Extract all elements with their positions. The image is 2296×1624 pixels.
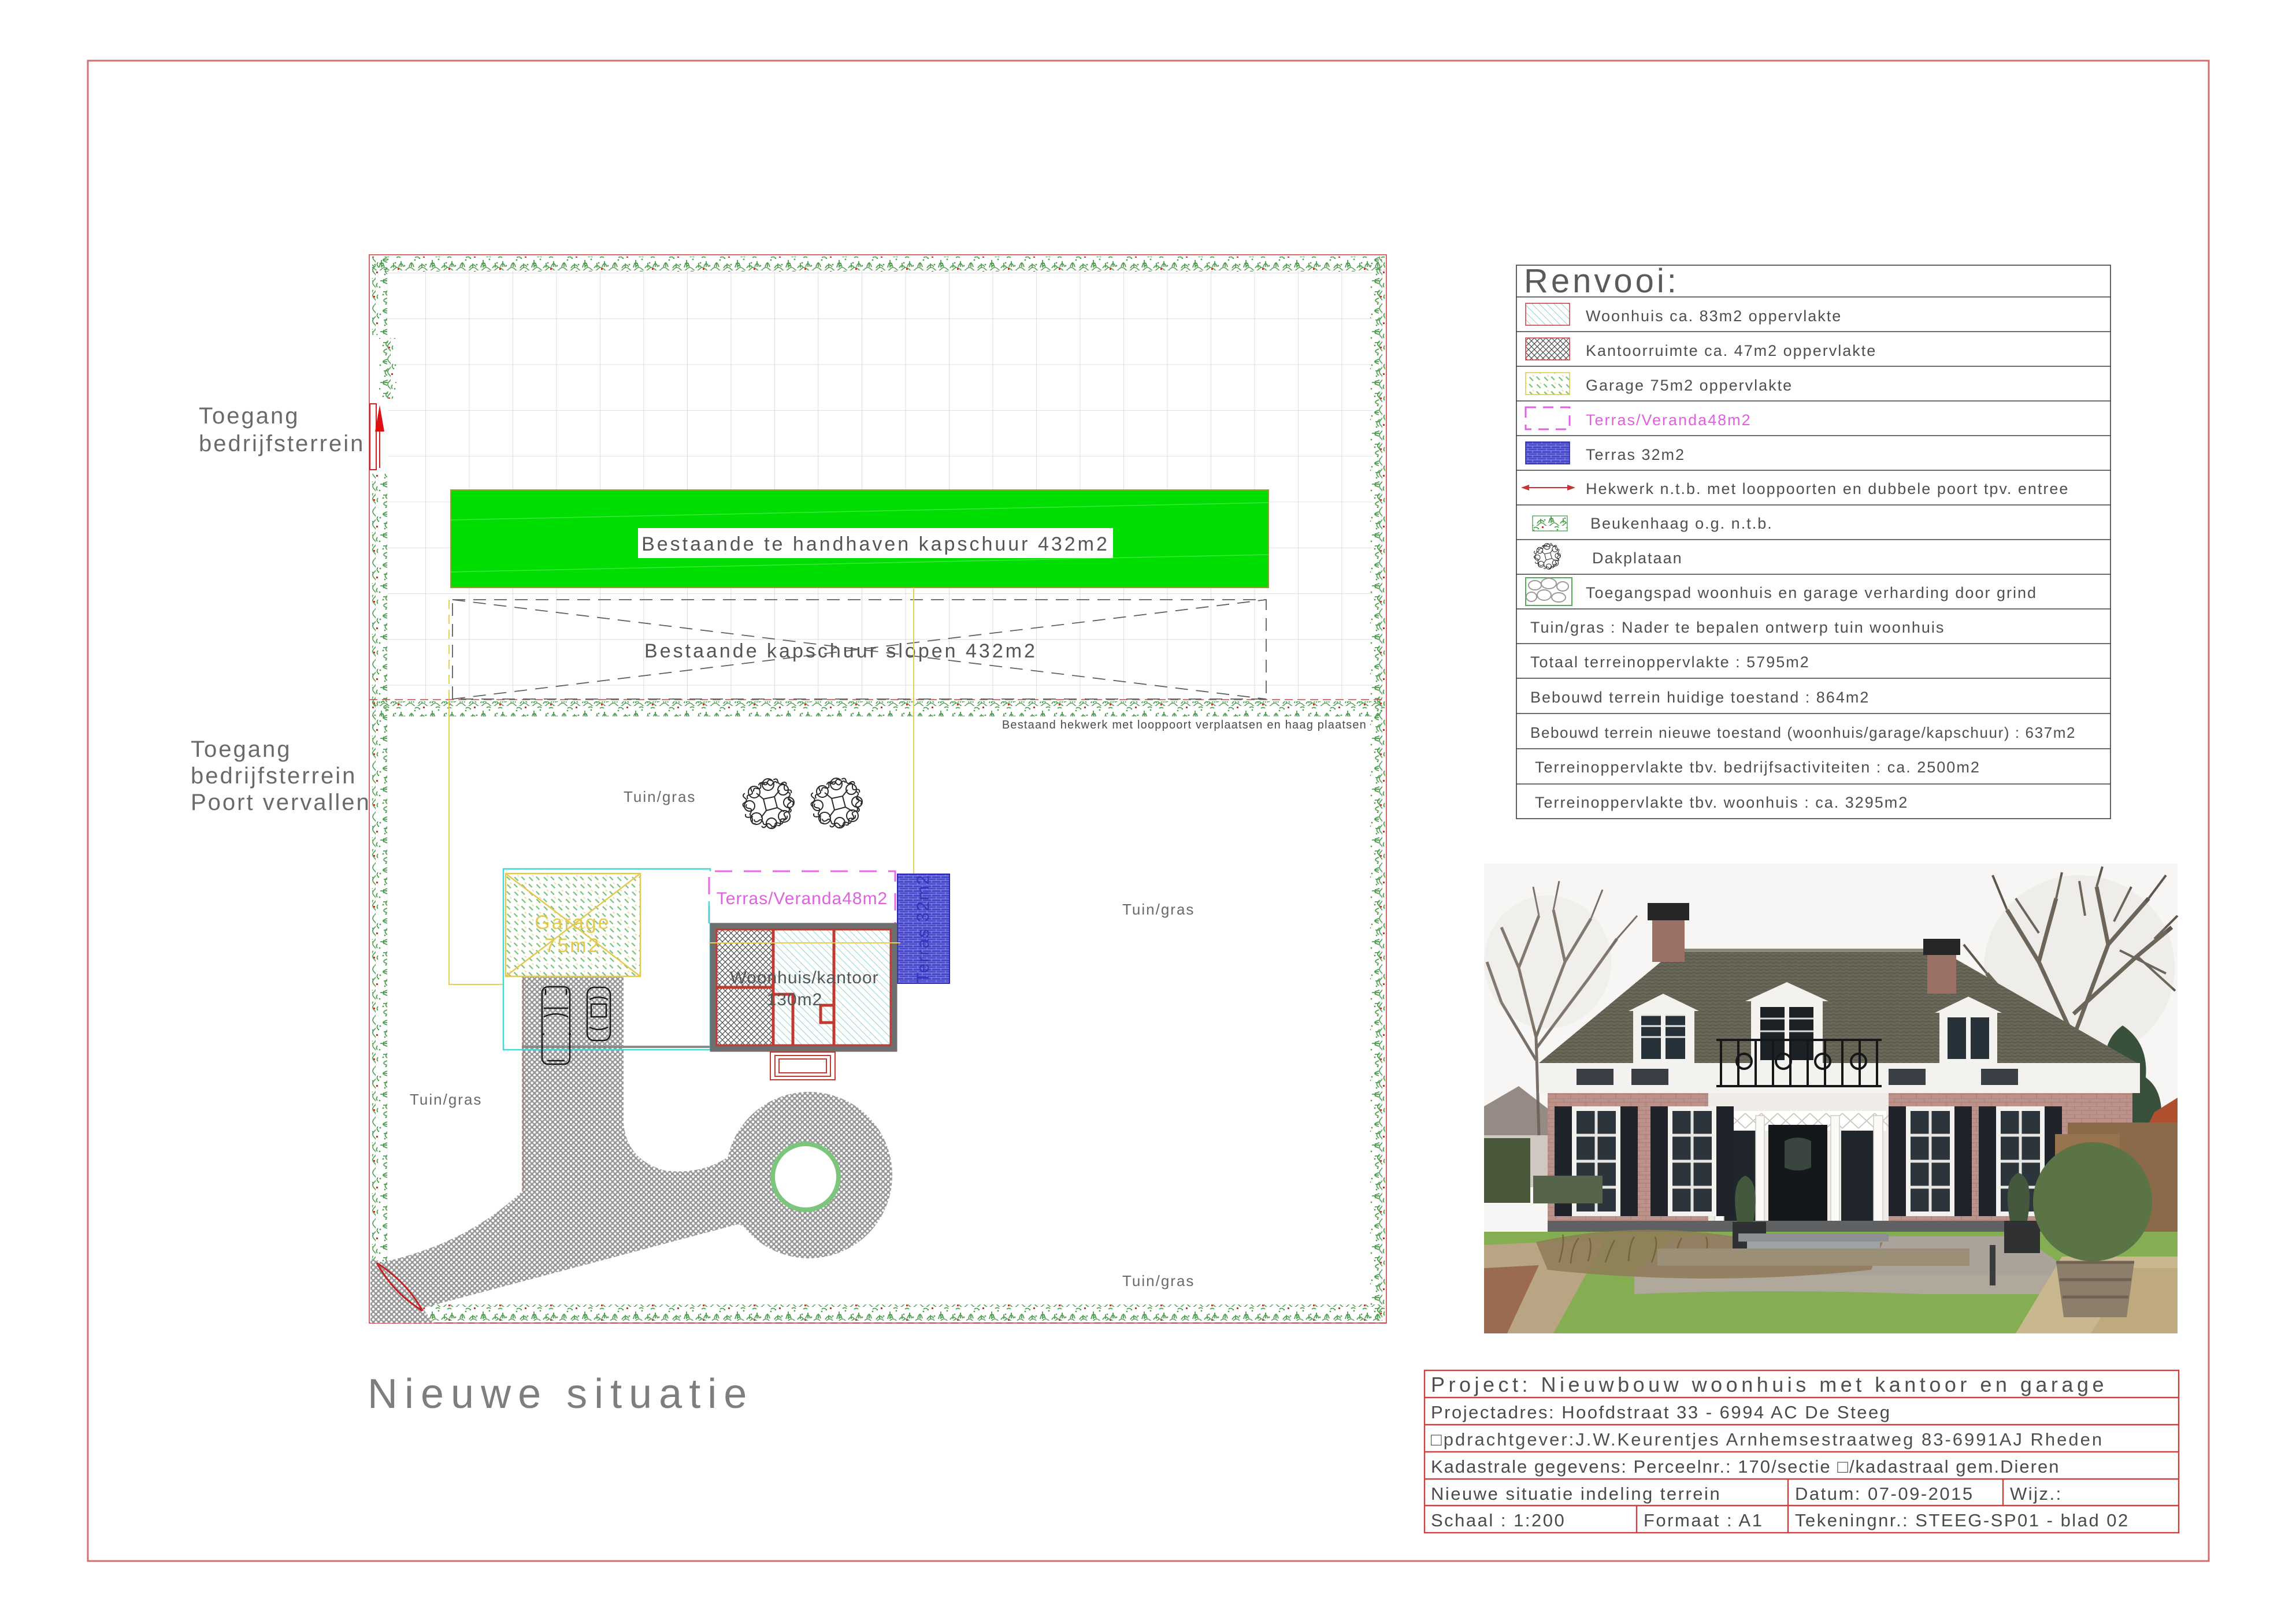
svg-text:Toegang: Toegang: [191, 737, 291, 762]
svg-text:Terreinoppervlakte tbv. woonhu: Terreinoppervlakte tbv. woonhuis : ca. 3…: [1535, 794, 1908, 811]
svg-text:Tuin/gras: Tuin/gras: [410, 1091, 482, 1108]
svg-text:bedrijfsterrein: bedrijfsterrein: [199, 431, 365, 456]
svg-text:Nieuwe situatie: Nieuwe situatie: [368, 1371, 754, 1417]
svg-text:Renvooi:: Renvooi:: [1524, 262, 1679, 300]
svg-text:Bestaande te handhaven kapschu: Bestaande te handhaven kapschuur 432m2: [641, 533, 1110, 555]
svg-text:Bebouwd terrein huidige toesta: Bebouwd terrein huidige toestand : 864m2: [1530, 689, 1870, 706]
svg-text:Toegangspad woonhuis en garage: Toegangspad woonhuis en garage verhardin…: [1586, 584, 2037, 601]
svg-text:Projectadres: Hoofdstraat 33 -: Projectadres: Hoofdstraat 33 - 6994 AC D…: [1431, 1402, 1891, 1422]
svg-text:Formaat : A1: Formaat : A1: [1644, 1510, 1763, 1530]
svg-text:Poort vervallen: Poort vervallen: [191, 790, 371, 815]
svg-text:Tuin/gras: Tuin/gras: [1122, 1272, 1195, 1289]
svg-text:Terras 32m2: Terras 32m2: [1586, 446, 1685, 463]
svg-text:Woonhuis ca. 83m2 oppervlakte: Woonhuis ca. 83m2 oppervlakte: [1586, 307, 1842, 325]
svg-text:Terras/Veranda48m2: Terras/Veranda48m2: [717, 889, 888, 908]
svg-text:Schaal : 1:200: Schaal : 1:200: [1431, 1510, 1566, 1530]
svg-text:□pdrachtgever:J.W.Keurentjes A: □pdrachtgever:J.W.Keurentjes Arnhemsestr…: [1431, 1429, 2104, 1450]
svg-text:Datum: 07-09-2015: Datum: 07-09-2015: [1795, 1484, 1974, 1504]
svg-text:130m2: 130m2: [767, 990, 823, 1009]
svg-text:Bebouwd terrein nieuwe toestan: Bebouwd terrein nieuwe toestand (woonhui…: [1530, 724, 2076, 741]
svg-text:Terras/Veranda48m2: Terras/Veranda48m2: [1586, 411, 1752, 429]
svg-text:Garage: Garage: [535, 912, 610, 934]
svg-text:Tekeningnr.: STEEG-SP01 - blad: Tekeningnr.: STEEG-SP01 - blad 02: [1795, 1510, 2130, 1530]
svg-text:Hekwerk n.t.b. met looppoorten: Hekwerk n.t.b. met looppoorten en dubbel…: [1586, 480, 2069, 497]
svg-text:Kantoorruimte ca. 47m2 oppervl: Kantoorruimte ca. 47m2 oppervlakte: [1586, 342, 1876, 359]
svg-text:Nieuwe situatie indeling terre: Nieuwe situatie indeling terrein: [1431, 1484, 1721, 1504]
svg-text:Dakplataan: Dakplataan: [1592, 549, 1683, 567]
svg-text:bedrijfsterrein: bedrijfsterrein: [191, 763, 357, 789]
svg-text:Toegang: Toegang: [199, 403, 299, 429]
svg-text:Tuin/gras : Nader te bepalen o: Tuin/gras : Nader te bepalen ontwerp tui…: [1530, 619, 1945, 636]
svg-text:Tuin/gras: Tuin/gras: [1122, 901, 1195, 918]
svg-text:Kadastrale gegevens: Perceelnr: Kadastrale gegevens: Perceelnr.: 170/sec…: [1431, 1456, 2060, 1477]
svg-text:Bestaande kapschuur slopen 432: Bestaande kapschuur slopen 432m2: [644, 640, 1037, 662]
svg-text:75m2: 75m2: [544, 935, 600, 957]
svg-text:Project: Nieuwbouw woonhuis me: Project: Nieuwbouw woonhuis met kantoor …: [1431, 1373, 2108, 1396]
svg-text:Totaal terreinoppervlakte : 57: Totaal terreinoppervlakte : 5795m2: [1530, 653, 1810, 671]
svg-text:Tuin/gras: Tuin/gras: [624, 788, 696, 805]
svg-text:Terreinoppervlakte tbv. bedrij: Terreinoppervlakte tbv. bedrijfsactivite…: [1535, 759, 1980, 776]
svg-text:Beukenhaag o.g. n.t.b.: Beukenhaag o.g. n.t.b.: [1590, 515, 1773, 532]
svg-text:Terras 32m2: Terras 32m2: [914, 874, 933, 983]
svg-text:Bestaand hekwerk met looppoort: Bestaand hekwerk met looppoort verplaats…: [1002, 719, 1367, 731]
svg-text:Garage 75m2 oppervlakte: Garage 75m2 oppervlakte: [1586, 377, 1793, 394]
svg-text:Woonhuis/kantoor: Woonhuis/kantoor: [730, 968, 878, 987]
svg-text:Wijz.:: Wijz.:: [2010, 1484, 2063, 1504]
